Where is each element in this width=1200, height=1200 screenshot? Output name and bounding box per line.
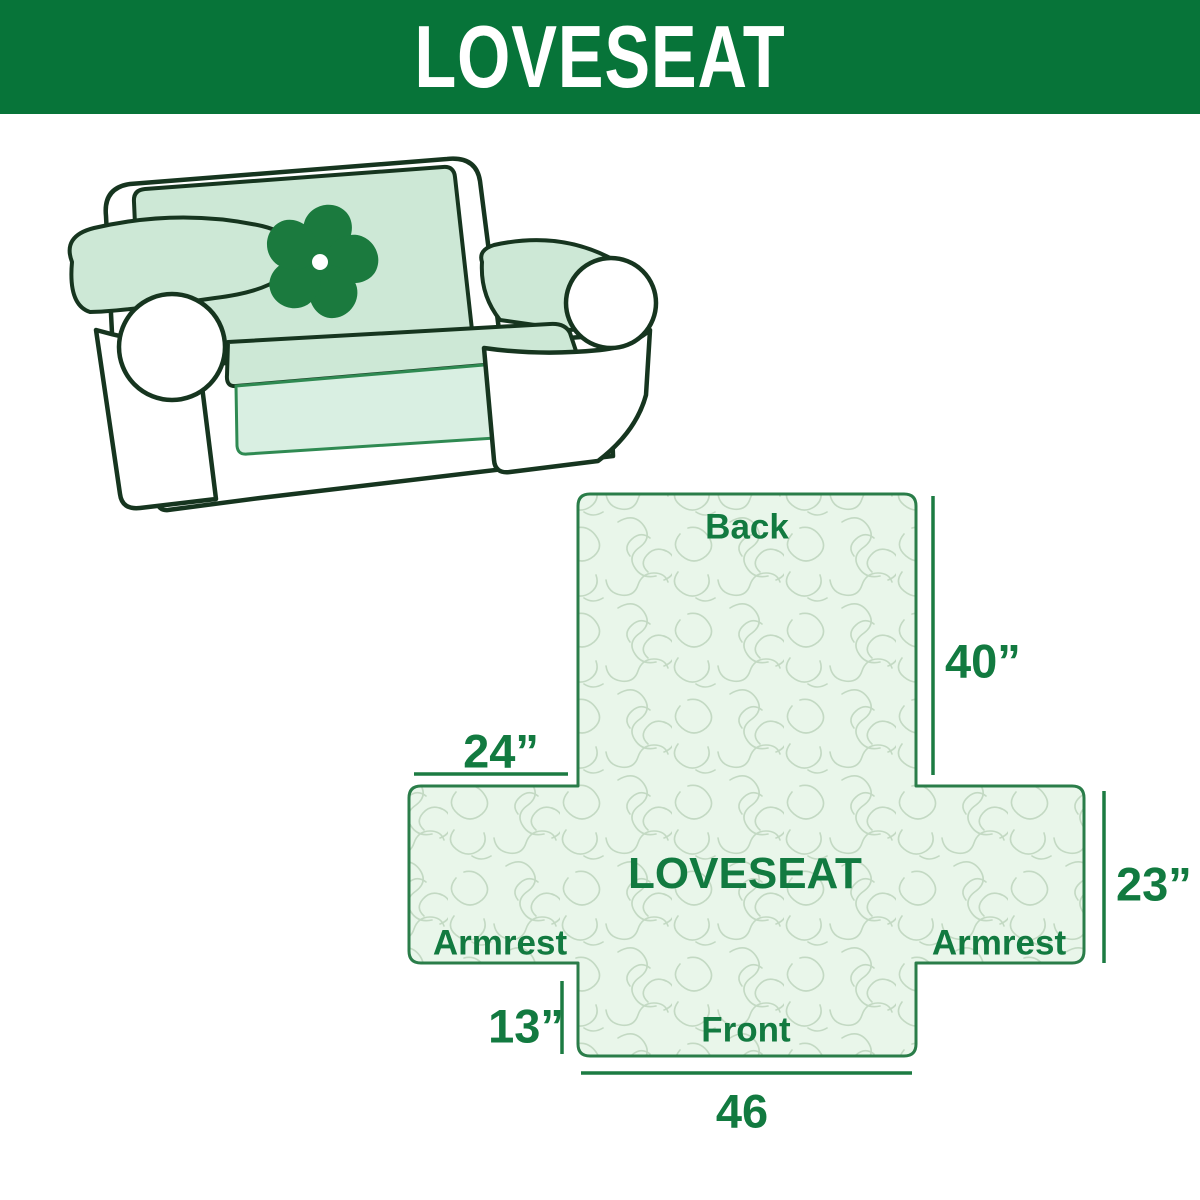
diagram-center-label: LOVESEAT bbox=[628, 852, 862, 896]
front-section-label: Front bbox=[701, 1013, 790, 1048]
dim-armrest-top-width-value: 24” bbox=[463, 728, 539, 775]
dim-front-width-value: 46 bbox=[716, 1088, 768, 1135]
armrest-right-label: Armrest bbox=[932, 926, 1066, 961]
artwork bbox=[0, 0, 1200, 1200]
sofa-illustration bbox=[70, 159, 656, 510]
dim-armrest-side-height-value: 23” bbox=[1116, 861, 1192, 908]
back-section-label: Back bbox=[705, 510, 789, 545]
dim-front-skirt-height-value: 13” bbox=[488, 1003, 564, 1050]
product-size-card: LOVESEAT bbox=[0, 0, 1200, 1200]
sofa-right-arm-roll bbox=[566, 258, 656, 348]
sofa-left-arm-roll bbox=[119, 294, 225, 400]
sofa-right-arm-body bbox=[484, 330, 650, 472]
dim-back-height-value: 40” bbox=[945, 638, 1021, 685]
armrest-left-label: Armrest bbox=[433, 926, 567, 961]
